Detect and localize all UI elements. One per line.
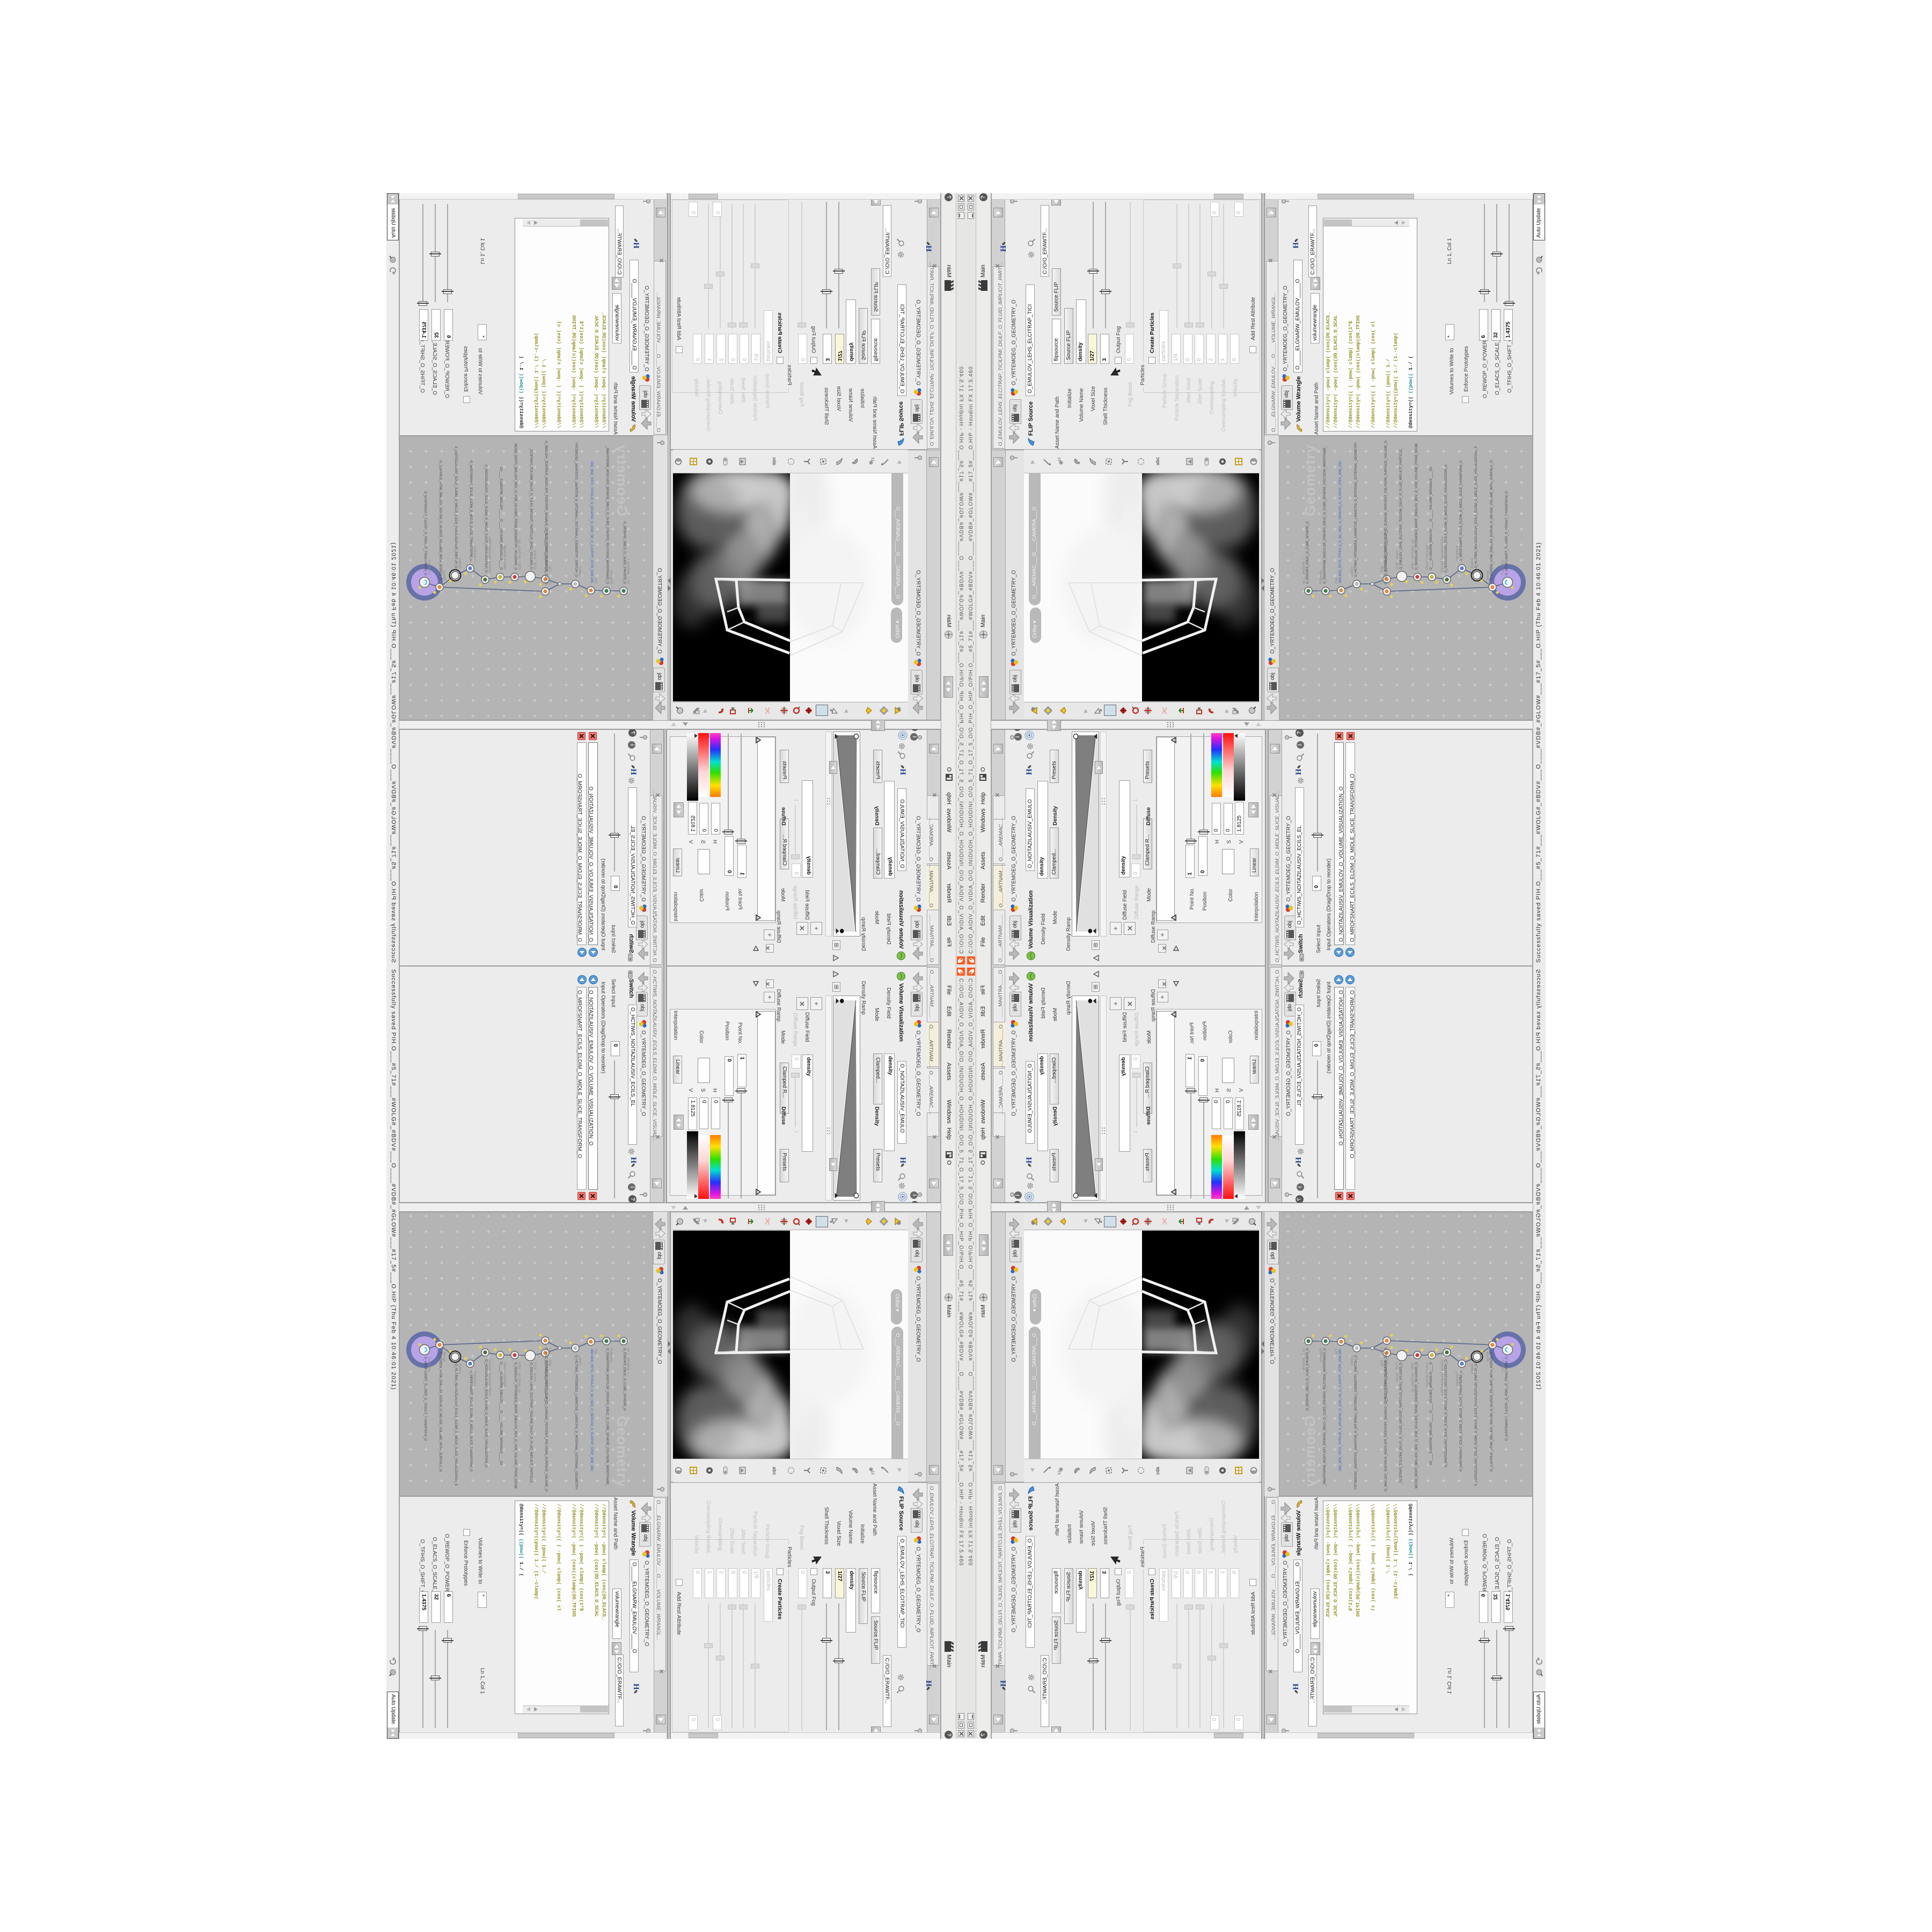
svg-text:12: 12 xyxy=(870,1470,874,1475)
svg-text:12: 12 xyxy=(1058,1470,1062,1475)
svg-text:abc: abc xyxy=(772,457,777,465)
svg-text:12: 12 xyxy=(1058,457,1062,462)
svg-text:12: 12 xyxy=(870,457,874,462)
svg-text:abc: abc xyxy=(772,1467,777,1475)
svg-text:abc: abc xyxy=(1155,457,1160,465)
svg-text:abc: abc xyxy=(1155,1467,1160,1475)
